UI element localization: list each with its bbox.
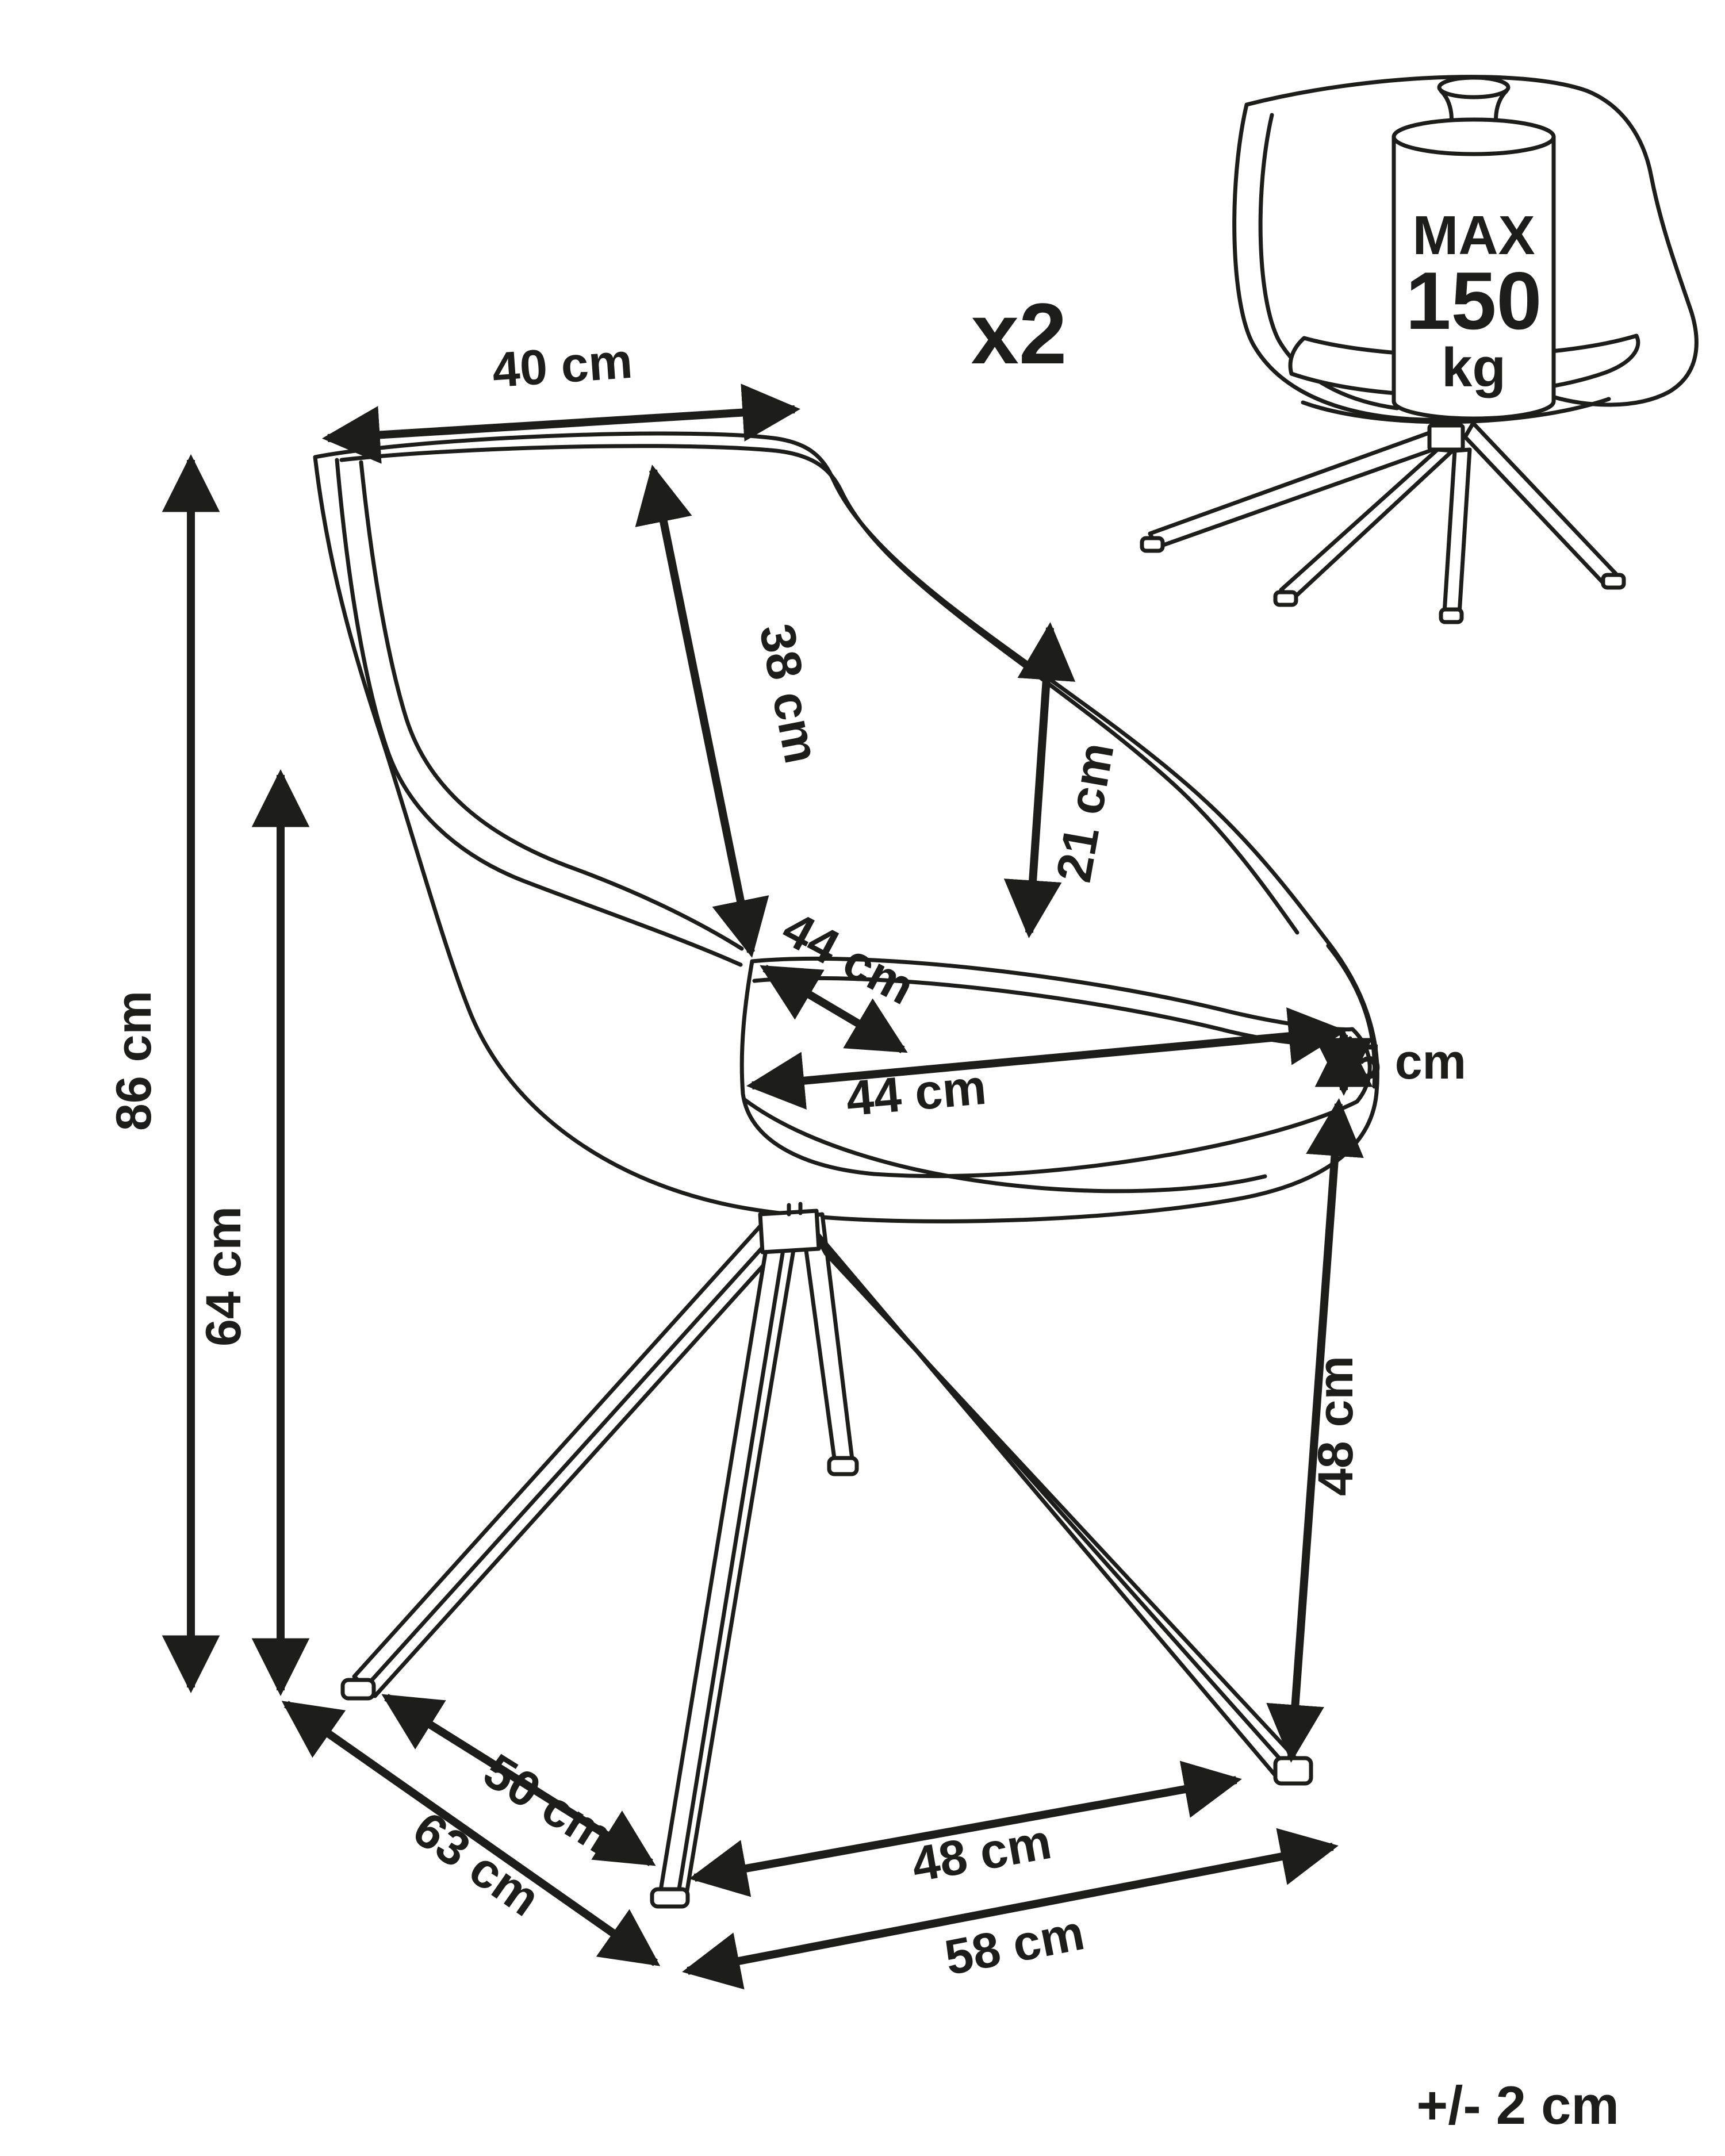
dim-base-inner-front-label: 48 cm bbox=[908, 1814, 1056, 1893]
weight-top bbox=[1394, 120, 1554, 154]
weight-150-text: 150 bbox=[1406, 255, 1542, 347]
front-leg-edge bbox=[678, 1250, 783, 1893]
weight-kg-text: kg bbox=[1442, 337, 1506, 398]
dim-seat-height-label: 48 cm bbox=[1308, 1356, 1363, 1496]
tolerance-note: +/- 2 cm bbox=[1416, 2075, 1619, 2135]
weight-icon: MAX 150 kg bbox=[1394, 78, 1554, 419]
inset-swivel-hub bbox=[1429, 425, 1463, 450]
right-leg-foot bbox=[1275, 1758, 1311, 1783]
left-leg-foot bbox=[343, 1680, 374, 1698]
swivel-hub bbox=[760, 1211, 819, 1252]
chair-dimension-diagram: 40 cm 86 cm 64 cm 38 cm 21 cm 44 cm 44 c… bbox=[0, 0, 1725, 2156]
main-chair-drawing bbox=[315, 433, 1377, 1906]
quantity-label: x2 bbox=[971, 285, 1067, 382]
dim-armrest-floor-height-label: 64 cm bbox=[196, 1206, 251, 1346]
dim-backrest-width-label: 40 cm bbox=[490, 333, 634, 398]
dimension-diagram-page: 40 cm 86 cm 64 cm 38 cm 21 cm 44 cm 44 c… bbox=[0, 0, 1725, 2156]
weight-knob-top bbox=[1439, 78, 1508, 97]
inset-chair-drawing: MAX 150 kg bbox=[1142, 77, 1696, 622]
front-leg-foot bbox=[652, 1889, 688, 1906]
dim-total-height-label: 86 cm bbox=[106, 991, 162, 1131]
right-leg-edge bbox=[821, 1243, 1293, 1773]
chair-legs bbox=[343, 1214, 1311, 1906]
back-leg-foot bbox=[829, 1458, 857, 1474]
inset-far-right-foot bbox=[1603, 575, 1624, 588]
inset-far-right-leg bbox=[1465, 423, 1618, 585]
inset-right-leg bbox=[1444, 450, 1470, 614]
inset-left-foot bbox=[1142, 538, 1163, 551]
inset-right-foot bbox=[1441, 609, 1462, 622]
inset-chair-legs bbox=[1142, 423, 1624, 622]
inset-front-foot bbox=[1275, 592, 1296, 605]
dim-cushion-thickness-label: 5 cm bbox=[1354, 1034, 1466, 1089]
